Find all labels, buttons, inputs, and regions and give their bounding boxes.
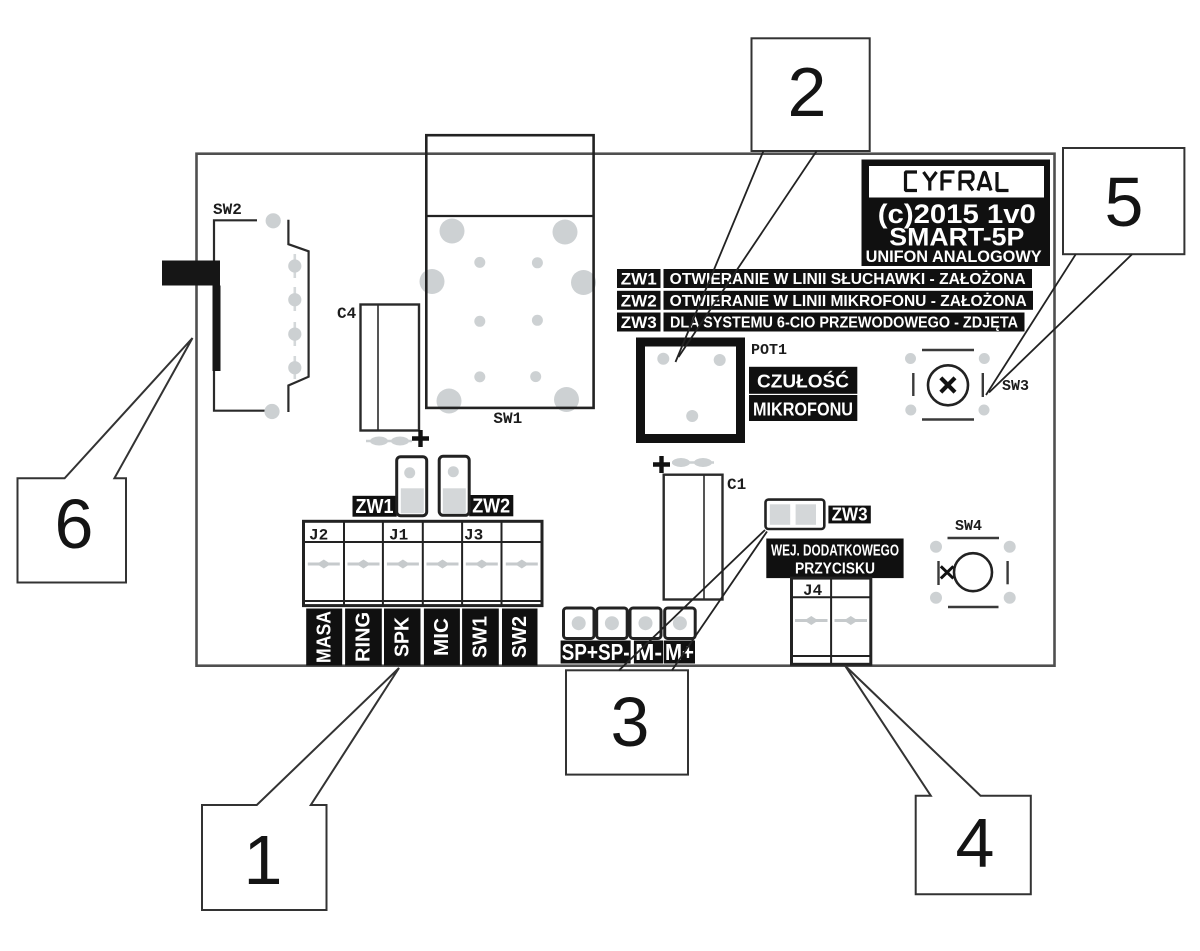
- svg-text:2: 2: [788, 53, 827, 131]
- svg-text:ZW3: ZW3: [621, 313, 657, 332]
- svg-text:J2: J2: [309, 527, 328, 545]
- svg-text:6: 6: [55, 485, 94, 563]
- svg-text:ZW2: ZW2: [621, 291, 657, 310]
- svg-text:4: 4: [956, 804, 995, 882]
- svg-text:MIC: MIC: [431, 618, 453, 656]
- svg-text:PRZYCISKU: PRZYCISKU: [795, 561, 875, 578]
- svg-text:ZW3: ZW3: [832, 505, 868, 525]
- svg-text:SW4: SW4: [955, 518, 982, 535]
- svg-text:SPK: SPK: [391, 616, 413, 657]
- svg-text:MASA: MASA: [314, 611, 336, 663]
- svg-text:DLA SYSTEMU 6-CIO PRZEWODOWEGO: DLA SYSTEMU 6-CIO PRZEWODOWEGO - ZDJĘTA: [670, 315, 1018, 332]
- svg-text:SW2: SW2: [509, 616, 531, 658]
- svg-text:SW1: SW1: [470, 616, 492, 658]
- svg-text:J4: J4: [803, 582, 823, 600]
- svg-text:5: 5: [1105, 163, 1144, 241]
- svg-text:WEJ. DODATKOWEGO: WEJ. DODATKOWEGO: [771, 543, 899, 560]
- svg-text:ZW1: ZW1: [356, 496, 394, 518]
- svg-text:SP+SP-: SP+SP-: [562, 639, 630, 665]
- svg-text:J3: J3: [464, 527, 483, 545]
- svg-text:RING: RING: [353, 612, 375, 662]
- svg-text:J1: J1: [389, 527, 408, 545]
- svg-text:ZW2: ZW2: [472, 496, 510, 518]
- svg-text:C1: C1: [727, 476, 746, 494]
- svg-text:MIKROFONU: MIKROFONU: [753, 400, 853, 420]
- svg-text:3: 3: [611, 683, 650, 761]
- svg-text:SW3: SW3: [1002, 378, 1029, 395]
- svg-text:SW2: SW2: [213, 201, 242, 219]
- svg-text:ZW1: ZW1: [621, 270, 657, 289]
- svg-text:UNIFON ANALOGOWY: UNIFON ANALOGOWY: [866, 248, 1042, 266]
- svg-text:1: 1: [244, 821, 283, 899]
- svg-text:OTWIERANIE W LINII MIKROFONU -: OTWIERANIE W LINII MIKROFONU - ZAŁOŻONA: [670, 293, 1027, 310]
- svg-text:M+: M+: [665, 639, 694, 665]
- svg-text:POT1: POT1: [751, 342, 787, 359]
- svg-text:CZUŁOŚĆ: CZUŁOŚĆ: [757, 371, 849, 392]
- svg-text:C4: C4: [337, 305, 357, 323]
- svg-text:OTWIERANIE W LINII SŁUCHAWKI -: OTWIERANIE W LINII SŁUCHAWKI - ZAŁOŻONA: [670, 271, 1026, 288]
- svg-text:SW1: SW1: [493, 410, 522, 428]
